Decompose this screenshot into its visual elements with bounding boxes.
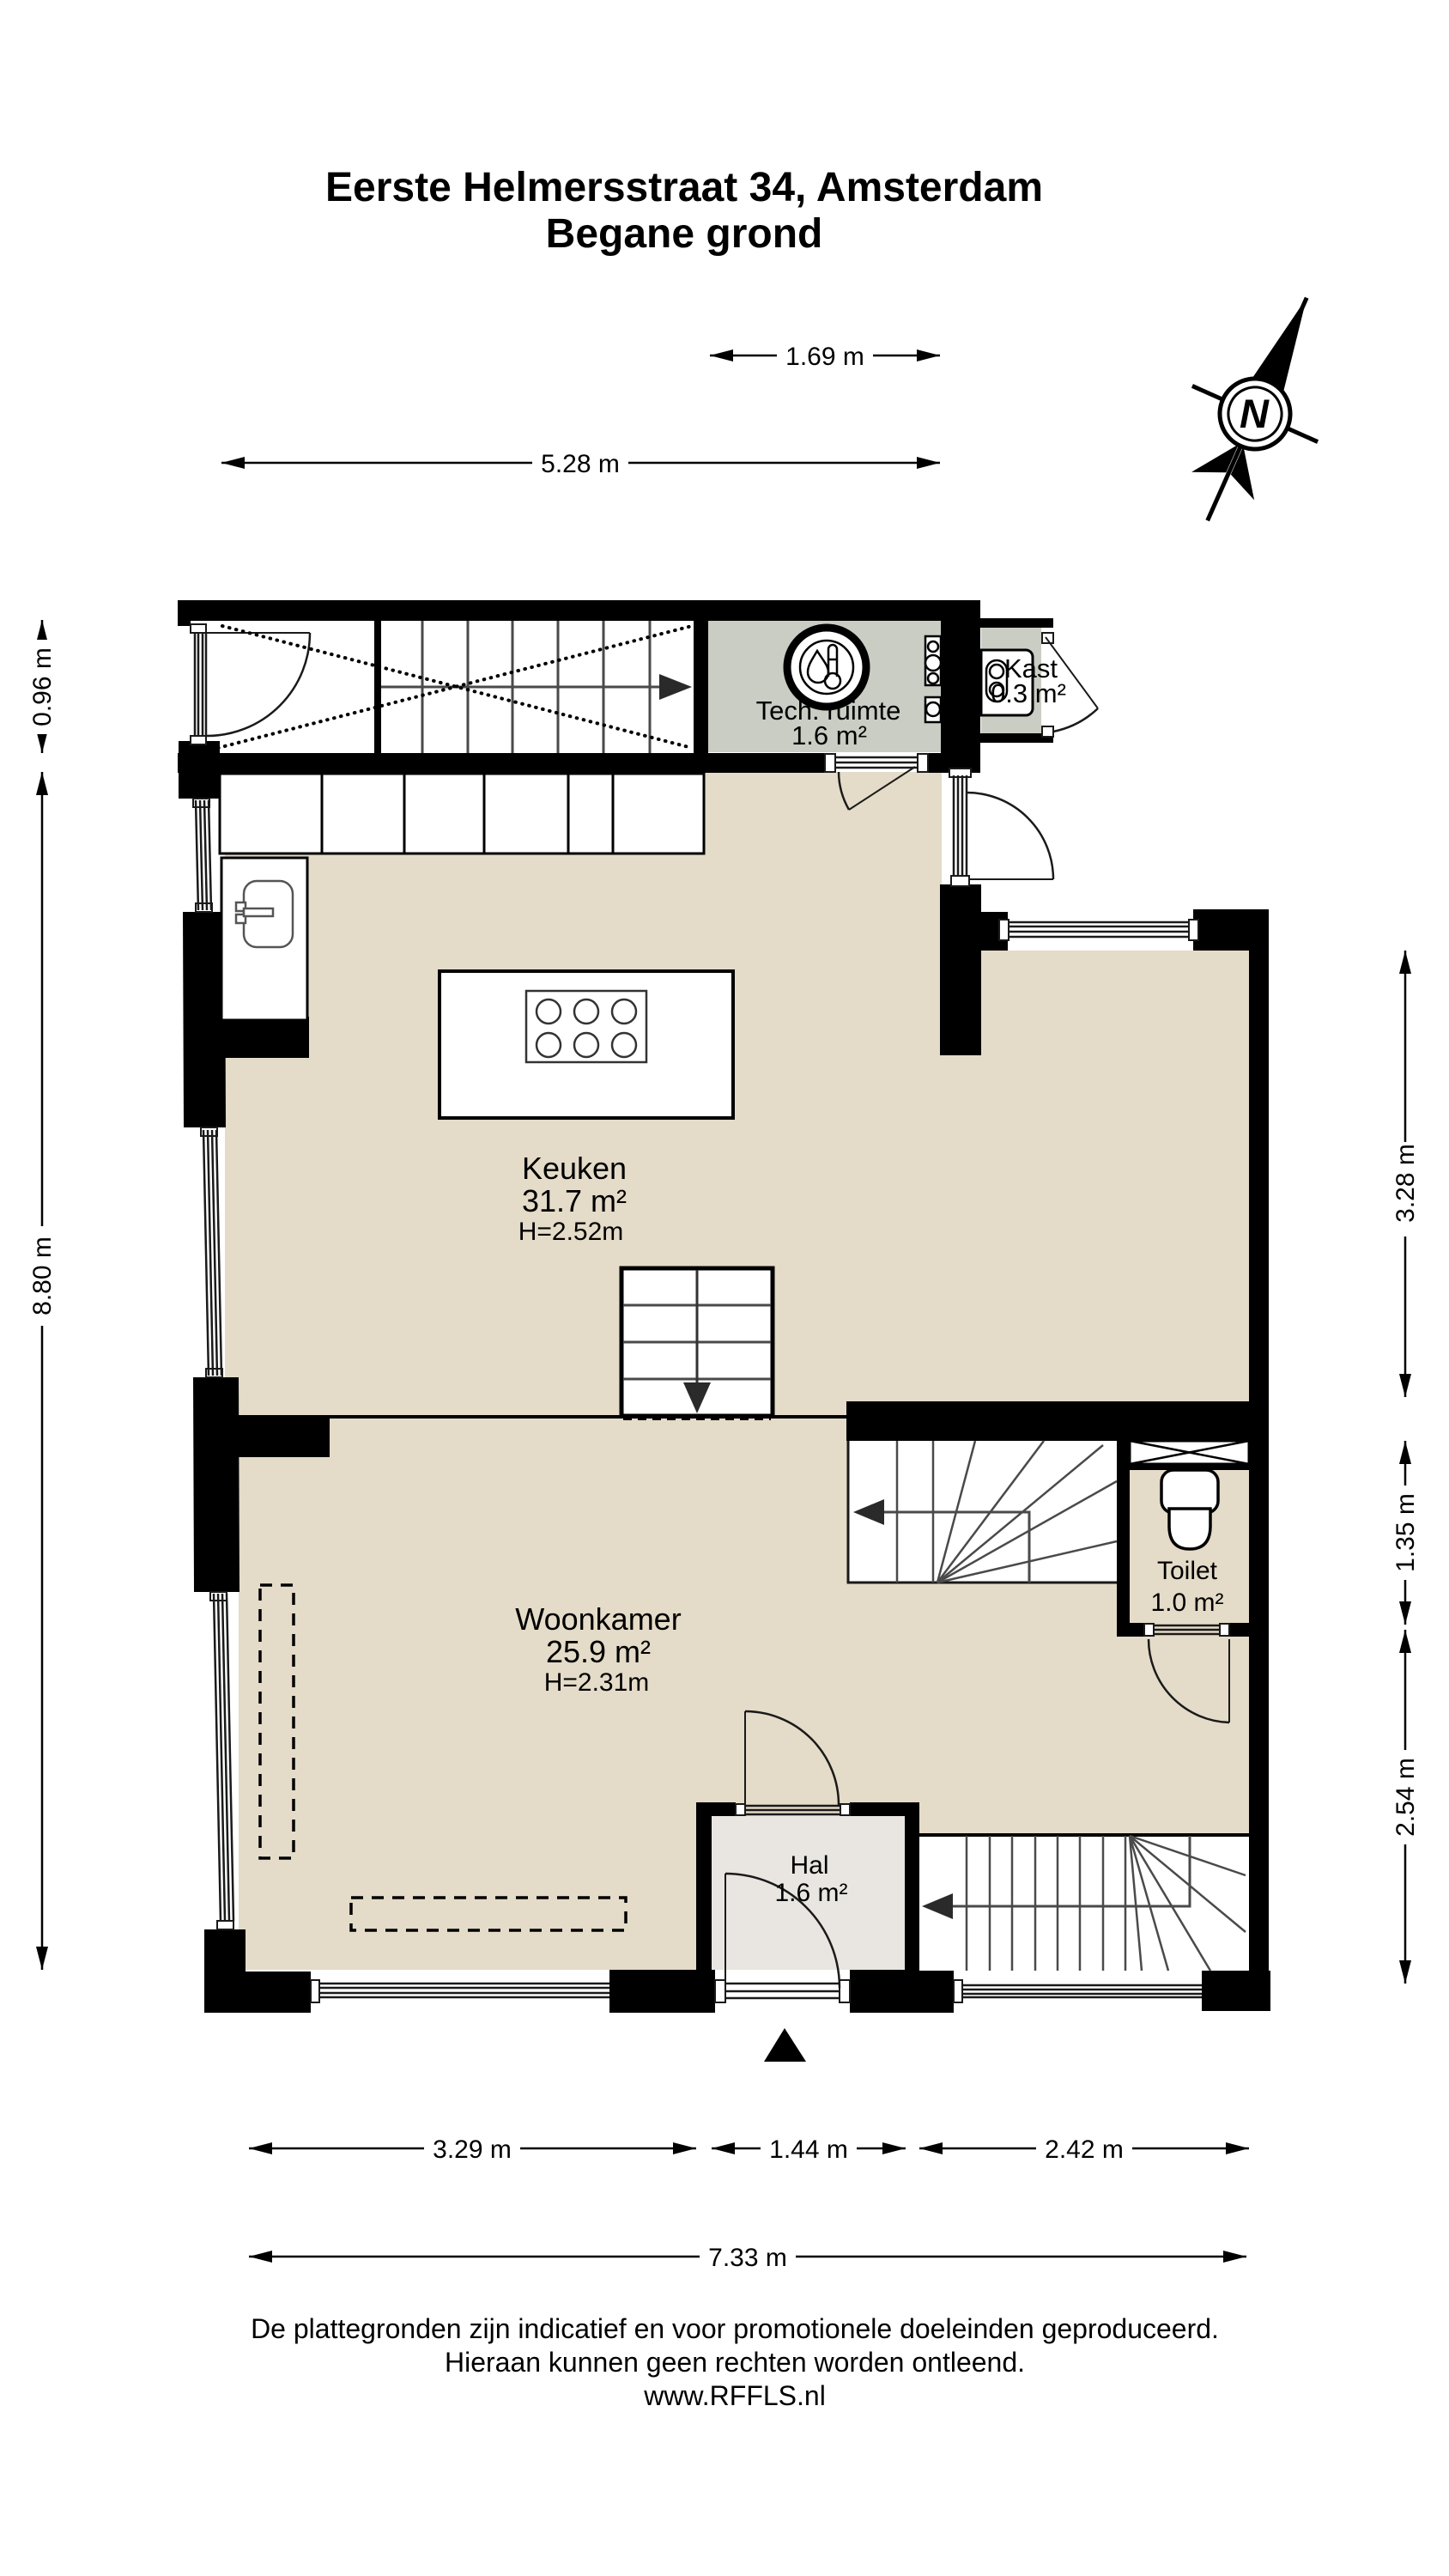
svg-text:1.6 m²: 1.6 m²	[791, 720, 867, 750]
svg-text:Toilet: Toilet	[1157, 1557, 1218, 1585]
svg-text:Woonkamer: Woonkamer	[515, 1601, 681, 1637]
svg-text:3.28 m: 3.28 m	[1391, 1144, 1420, 1223]
svg-text:0.96 m: 0.96 m	[28, 647, 57, 726]
svg-text:www.RFFLS.nl: www.RFFLS.nl	[643, 2380, 826, 2411]
svg-text:1.35 m: 1.35 m	[1391, 1493, 1420, 1572]
svg-text:H=2.31m: H=2.31m	[544, 1668, 650, 1697]
svg-text:N: N	[1240, 391, 1270, 436]
svg-text:1.6 m²: 1.6 m²	[774, 1879, 847, 1907]
svg-text:Hieraan kunnen geen rechten wo: Hieraan kunnen geen rechten worden ontle…	[445, 2347, 1025, 2378]
svg-text:31.7 m²: 31.7 m²	[522, 1183, 627, 1218]
svg-text:25.9 m²: 25.9 m²	[546, 1634, 651, 1669]
svg-text:1.0 m²: 1.0 m²	[1150, 1589, 1223, 1617]
svg-text:5.28 m: 5.28 m	[541, 450, 620, 478]
svg-text:2.42 m: 2.42 m	[1045, 2136, 1124, 2164]
svg-text:2.54 m: 2.54 m	[1391, 1758, 1420, 1837]
svg-text:De plattegronden zijn indicati: De plattegronden zijn indicatief en voor…	[251, 2313, 1219, 2344]
svg-text:H=2.52m: H=2.52m	[518, 1218, 624, 1246]
svg-text:3.29 m: 3.29 m	[433, 2136, 512, 2164]
svg-text:Hal: Hal	[790, 1851, 828, 1880]
svg-text:1.44 m: 1.44 m	[769, 2136, 848, 2164]
svg-text:Keuken: Keuken	[522, 1151, 627, 1186]
svg-text:1.69 m: 1.69 m	[785, 343, 864, 371]
svg-text:Begane grond: Begane grond	[546, 211, 823, 257]
svg-text:7.33 m: 7.33 m	[708, 2244, 787, 2272]
svg-text:8.80 m: 8.80 m	[28, 1236, 57, 1315]
svg-text:0.3 m²: 0.3 m²	[991, 678, 1066, 708]
svg-text:Eerste Helmersstraat 34, Amste: Eerste Helmersstraat 34, Amsterdam	[325, 165, 1043, 210]
